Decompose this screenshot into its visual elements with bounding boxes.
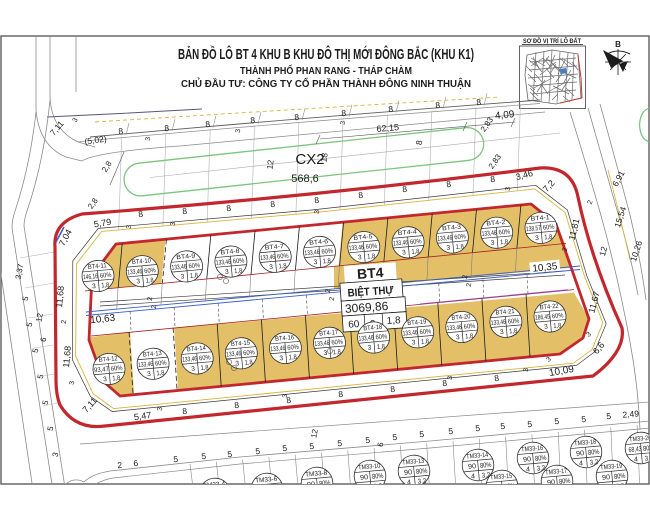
svg-text:60%: 60% (508, 318, 520, 326)
svg-text:60%: 60% (287, 344, 299, 352)
svg-text:4: 4 (526, 466, 531, 473)
svg-text:1,8: 1,8 (200, 364, 209, 372)
svg-text:1,8: 1,8 (386, 315, 401, 327)
svg-text:1,8: 1,8 (323, 258, 332, 266)
svg-text:1,8: 1,8 (421, 338, 430, 346)
svg-text:60%: 60% (321, 248, 333, 256)
svg-text:60%: 60% (552, 312, 564, 320)
svg-text:133,46: 133,46 (171, 263, 187, 271)
svg-text:133,46: 133,46 (481, 230, 497, 238)
svg-text:133,46: 133,46 (314, 340, 330, 348)
svg-text:2: 2 (329, 297, 336, 302)
svg-text:60%: 60% (199, 354, 211, 362)
svg-text:1,8: 1,8 (367, 253, 376, 261)
svg-text:2: 2 (462, 275, 469, 280)
svg-text:1,8: 1,8 (288, 354, 297, 362)
svg-text:CHỦ ĐẦU TƯ: CÔNG TY CỔ PHẦN TH: CHỦ ĐẦU TƯ: CÔNG TY CỔ PHẦN THÀNH ĐÔNG N… (181, 77, 471, 90)
svg-text:60: 60 (348, 319, 360, 331)
svg-text:11,68: 11,68 (61, 345, 73, 368)
svg-text:1,8: 1,8 (377, 343, 386, 351)
svg-text:3: 3 (126, 225, 133, 230)
svg-text:80%: 80% (643, 445, 650, 453)
svg-text:3: 3 (69, 381, 76, 386)
svg-text:1,8: 1,8 (145, 277, 154, 285)
svg-text:80%: 80% (535, 455, 547, 463)
svg-text:133,46: 133,46 (358, 335, 374, 343)
svg-text:18: 18 (318, 152, 329, 163)
svg-text:BT4: BT4 (357, 264, 385, 282)
svg-text:80%: 80% (480, 462, 492, 470)
svg-text:60%: 60% (188, 262, 200, 270)
svg-text:133,46: 133,46 (437, 235, 453, 243)
svg-text:3: 3 (235, 129, 242, 134)
svg-text:1,8: 1,8 (278, 263, 287, 271)
svg-text:3: 3 (447, 376, 454, 381)
svg-text:1,8: 1,8 (553, 322, 562, 330)
svg-text:93,47: 93,47 (94, 366, 110, 374)
svg-text:3: 3 (314, 210, 321, 215)
svg-text:60%: 60% (410, 238, 422, 246)
svg-text:133,46: 133,46 (491, 319, 507, 327)
svg-text:90: 90 (360, 474, 369, 482)
svg-text:90: 90 (468, 463, 477, 471)
svg-text:1,8: 1,8 (544, 234, 553, 242)
svg-text:80%: 80% (416, 468, 428, 476)
svg-text:568,6: 568,6 (291, 173, 319, 185)
svg-text:3: 3 (170, 222, 177, 227)
svg-text:60%: 60% (144, 267, 156, 275)
svg-text:133,46: 133,46 (446, 324, 462, 332)
svg-text:60%: 60% (100, 272, 112, 280)
svg-text:4: 4 (471, 473, 476, 480)
svg-text:133,46: 133,46 (270, 345, 286, 353)
svg-text:90: 90 (523, 456, 532, 464)
svg-text:1,8: 1,8 (411, 248, 420, 256)
svg-text:133,46: 133,46 (182, 356, 198, 364)
svg-text:1,8: 1,8 (509, 328, 518, 336)
svg-text:68,43: 68,43 (628, 446, 642, 454)
svg-text:60%: 60% (111, 365, 123, 373)
svg-text:B: B (615, 40, 621, 49)
svg-text:1,8: 1,8 (244, 359, 253, 367)
svg-text:60%: 60% (463, 323, 475, 331)
svg-text:THÀNH PHỐ PHAN RANG - THÁP CHÀ: THÀNH PHỐ PHAN RANG - THÁP CHÀM (240, 63, 412, 77)
svg-text:80%: 80% (614, 473, 626, 481)
svg-text:2: 2 (151, 305, 158, 310)
svg-text:133,46: 133,46 (226, 350, 242, 358)
svg-text:2: 2 (61, 320, 68, 325)
svg-text:186,45: 186,45 (535, 314, 551, 322)
svg-text:4: 4 (634, 456, 639, 463)
svg-text:1,8: 1,8 (333, 349, 342, 357)
svg-text:60%: 60% (331, 339, 343, 347)
svg-text:2: 2 (147, 297, 154, 302)
svg-text:1,8: 1,8 (101, 282, 110, 290)
svg-text:4,09: 4,09 (494, 109, 515, 122)
svg-text:3,2: 3,2 (589, 459, 598, 467)
svg-text:90: 90 (602, 474, 611, 482)
svg-text:11,68: 11,68 (54, 285, 66, 308)
svg-text:133,46: 133,46 (216, 259, 232, 267)
svg-text:133,46: 133,46 (304, 249, 320, 257)
svg-text:1,8: 1,8 (156, 370, 165, 378)
svg-text:60%: 60% (155, 360, 167, 368)
svg-text:4: 4 (579, 460, 584, 467)
svg-text:2: 2 (466, 283, 473, 288)
svg-text:60%: 60% (498, 229, 510, 237)
svg-text:133,46: 133,46 (127, 268, 143, 276)
svg-text:1,8: 1,8 (500, 239, 509, 247)
svg-text:133,46: 133,46 (393, 239, 409, 247)
svg-text:BẢN ĐỒ LÔ BT 4 KHU B KHU ĐÔ TH: BẢN ĐỒ LÔ BT 4 KHU B KHU ĐÔ THỊ MỚI ĐÔNG… (178, 45, 474, 63)
svg-text:133,46: 133,46 (138, 361, 154, 369)
svg-text:60%: 60% (243, 349, 255, 357)
svg-text:3: 3 (523, 368, 530, 373)
svg-text:1,8: 1,8 (455, 243, 464, 251)
svg-text:60%: 60% (543, 224, 555, 232)
svg-text:90: 90 (576, 450, 585, 458)
svg-text:3: 3 (145, 137, 152, 142)
svg-text:3: 3 (157, 407, 164, 412)
svg-text:2: 2 (325, 289, 332, 294)
svg-text:1,8: 1,8 (234, 267, 243, 275)
svg-text:3: 3 (340, 121, 347, 126)
svg-text:60%: 60% (277, 253, 289, 261)
svg-text:60%: 60% (233, 257, 245, 265)
svg-text:133,46: 133,46 (402, 329, 418, 337)
svg-text:60%: 60% (365, 243, 377, 251)
svg-text:90: 90 (404, 469, 413, 477)
svg-text:2,49: 2,49 (622, 408, 640, 419)
svg-text:80%: 80% (372, 473, 384, 481)
svg-text:60%: 60% (419, 328, 431, 336)
svg-text:133,46: 133,46 (348, 244, 364, 252)
svg-text:3: 3 (505, 187, 512, 192)
svg-text:62,15: 62,15 (376, 122, 399, 134)
svg-text:1,8: 1,8 (465, 333, 474, 341)
svg-text:3: 3 (282, 394, 289, 399)
svg-text:146,16: 146,16 (83, 273, 99, 281)
svg-text:133,46: 133,46 (260, 254, 276, 262)
svg-text:138,57: 138,57 (526, 225, 542, 233)
svg-text:12: 12 (264, 159, 275, 170)
svg-text:60%: 60% (375, 333, 387, 341)
svg-text:60%: 60% (454, 233, 466, 241)
svg-text:1,8: 1,8 (190, 272, 199, 280)
svg-text:80%: 80% (588, 449, 600, 457)
svg-text:1,8: 1,8 (112, 375, 121, 383)
